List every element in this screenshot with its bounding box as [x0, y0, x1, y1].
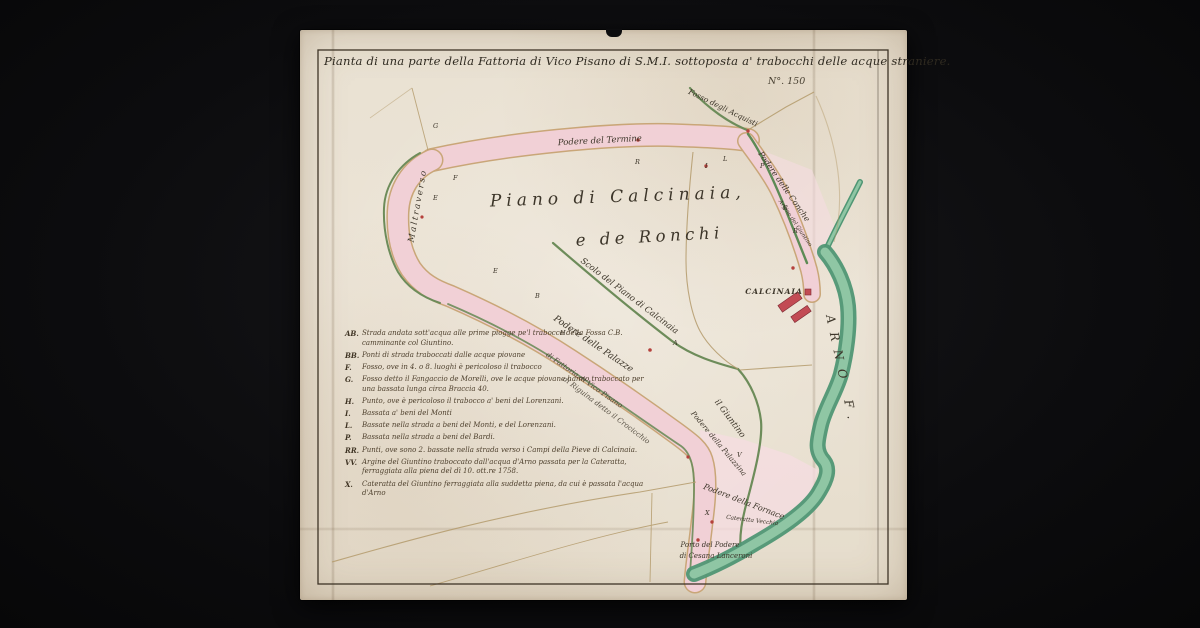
marker-letter: B — [534, 292, 540, 300]
legend-key: VV. — [345, 458, 362, 477]
legend-key: H. — [345, 397, 362, 407]
legend-row: RR. Punti, ove sono 2. bassate nella str… — [345, 446, 649, 456]
legend-text: Punti, ove sono 2. bassate nella strada … — [362, 446, 649, 456]
legend-key: AB. — [345, 329, 362, 348]
marker-letter: A — [672, 339, 678, 347]
legend-key: I. — [345, 409, 362, 419]
legend-text: Argine del Giuntino traboccato dall'acqu… — [362, 458, 649, 477]
marker-letter: I — [704, 162, 708, 170]
legend-row: H. Punto, ove è pericoloso il trabocco a… — [345, 397, 649, 407]
label-porto-line2: di Cesana Lanceroni — [680, 552, 753, 560]
legend-text: Bassata nella strada a beni del Bardi. — [362, 433, 649, 443]
legend-row: AB. Strada andata sott'acqua alle prime … — [345, 329, 649, 348]
map-figure: F E E B R I L P R R A V X G H Piano di C… — [300, 30, 907, 600]
label-scolo-piano-calcinaia: Scolo del Piano di Calcinaia — [578, 256, 680, 336]
legend-key: P. — [345, 433, 362, 443]
label-piano-di-calcinaia: Piano di Calcinaia, — [489, 183, 746, 212]
legend-text: Cateratta del Giuntino ferraggiata alla … — [362, 480, 649, 499]
legend-text: Fosso detto il Fangaccio de Morelli, ove… — [362, 375, 649, 394]
legend-text: Fosso, ove in 4. o 8. luoghi è pericolos… — [362, 363, 649, 373]
legend-row: G. Fosso detto il Fangaccio de Morelli, … — [345, 375, 649, 394]
label-e-de-ronchi: e de Ronchi — [575, 223, 724, 250]
legend-text: Strada andata sott'acqua alle prime piog… — [362, 329, 649, 348]
marker-letter: X — [704, 509, 710, 517]
legend-text: Bassata a' beni del Monti — [362, 409, 649, 419]
legend-text: Bassate nella strada a beni del Monti, e… — [362, 421, 649, 431]
marker-letter: R — [634, 158, 640, 166]
legend-row: F. Fosso, ove in 4. o 8. luoghi è perico… — [345, 363, 649, 373]
legend-key: BB. — [345, 351, 362, 361]
legend-key: RR. — [345, 446, 362, 456]
marker-letter: L — [722, 155, 727, 163]
legend-row: L. Bassate nella strada a beni del Monti… — [345, 421, 649, 431]
legend-row: VV. Argine del Giuntino traboccato dall'… — [345, 458, 649, 477]
legend-key: L. — [345, 421, 362, 431]
map-legend: AB. Strada andata sott'acqua alle prime … — [345, 329, 649, 501]
legend-text: Ponti di strada traboccati dalle acque p… — [362, 351, 649, 361]
photo-stage: Pianta di una parte della Fattoria di Vi… — [0, 0, 1200, 628]
legend-row: X. Cateratta del Giuntino ferraggiata al… — [345, 480, 649, 499]
map-sheet: Pianta di una parte della Fattoria di Vi… — [300, 30, 907, 600]
legend-key: X. — [345, 480, 362, 499]
label-calcinaia: CALCINAIA — [745, 287, 803, 296]
legend-key: G. — [345, 375, 362, 394]
label-porto-line1: Porto del Podere — [679, 541, 739, 549]
legend-text: Punto, ove è pericoloso il trabocco a' b… — [362, 397, 649, 407]
legend-row: P. Bassata nella strada a beni del Bardi… — [345, 433, 649, 443]
marker-letter: E — [492, 267, 498, 275]
marker-letter: F — [452, 174, 458, 182]
marker-letter: E — [432, 194, 438, 202]
legend-key: F. — [345, 363, 362, 373]
legend-row: BB. Ponti di strada traboccati dalle acq… — [345, 351, 649, 361]
label-fosso-degli-acquisti: Fosso degli Acquisti — [686, 87, 760, 129]
marker-letter: G — [433, 122, 438, 130]
legend-row: I. Bassata a' beni del Monti — [345, 409, 649, 419]
